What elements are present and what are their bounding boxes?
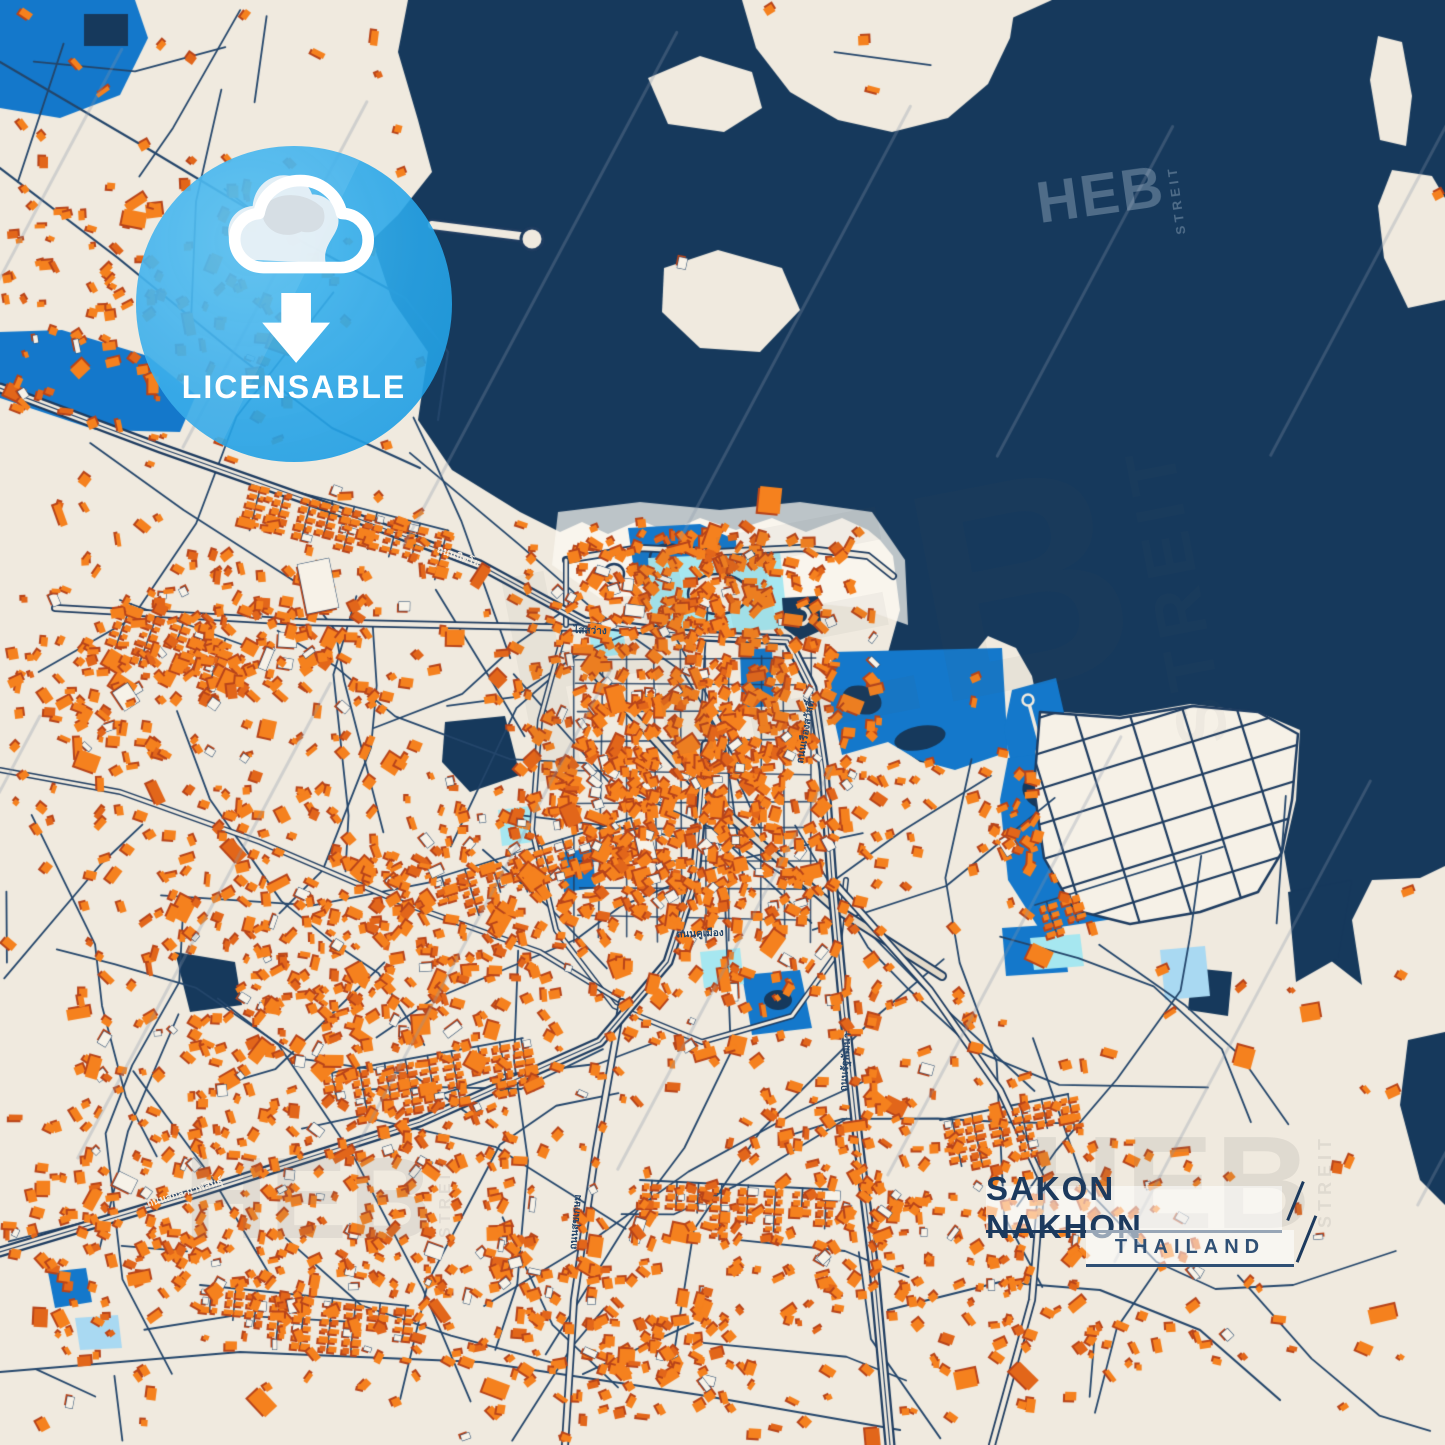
badge-label: LICENSABLE xyxy=(136,369,452,406)
map-subtitle: THAILAND xyxy=(1115,1236,1265,1259)
map-title-band: SAKON NAKHON xyxy=(986,1186,1282,1233)
map-poster: HEB STREIT HEB STREIT HEB STREIT HEB STR… xyxy=(0,0,1445,1445)
cloud-download-icon xyxy=(206,170,382,382)
licensable-badge[interactable]: LICENSABLE xyxy=(136,146,452,462)
map-subtitle-band: THAILAND xyxy=(1086,1230,1294,1267)
